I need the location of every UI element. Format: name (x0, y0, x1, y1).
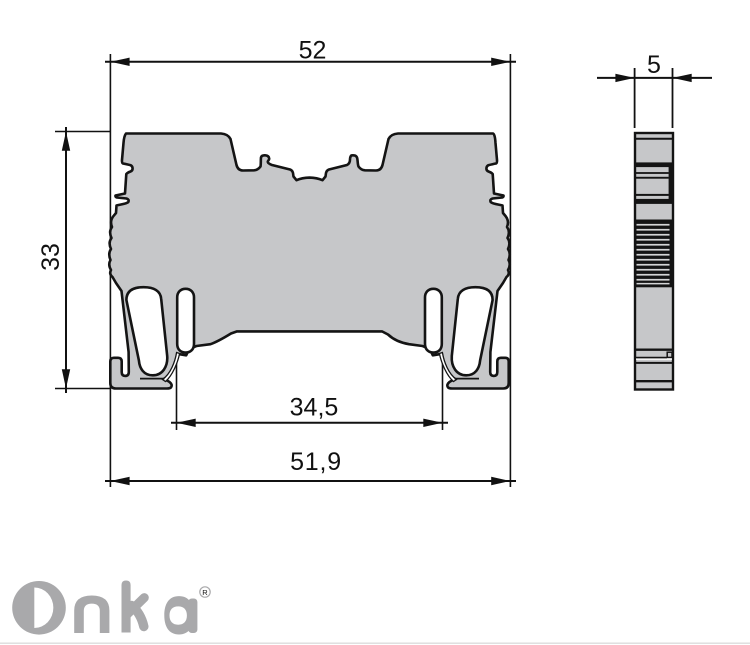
svg-text:34,5: 34,5 (290, 394, 339, 422)
svg-text:5: 5 (647, 51, 661, 79)
svg-text:R: R (202, 588, 208, 597)
svg-text:52: 52 (299, 37, 327, 65)
svg-text:51,9: 51,9 (290, 448, 342, 476)
svg-text:33: 33 (37, 243, 65, 271)
